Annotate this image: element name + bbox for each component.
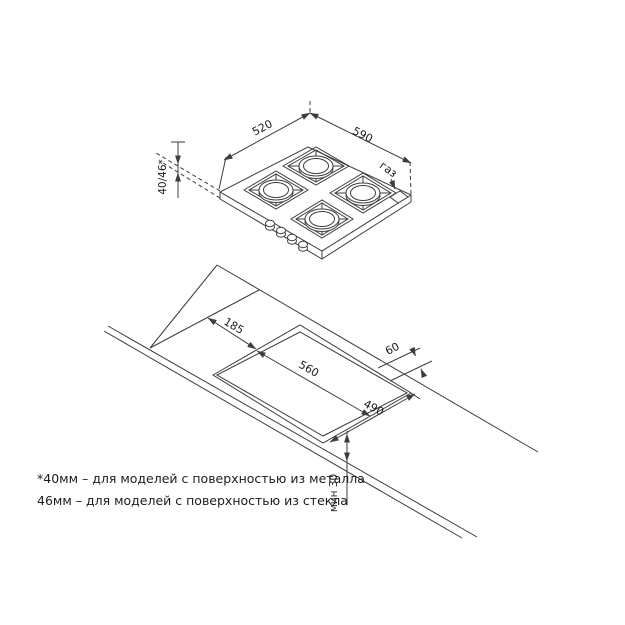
dim-height-label: 40/46* xyxy=(157,159,169,195)
dim-520-label: 520 xyxy=(250,117,275,138)
footnote-line-metal: *40мм – для моделей с поверхностью из ме… xyxy=(37,468,365,490)
dim-590-label: 590 xyxy=(350,124,375,145)
dimension-560: 560 xyxy=(257,351,370,416)
dim-185-label: 185 xyxy=(221,315,246,337)
installation-diagram: газ 520 590 40/46* xyxy=(0,0,625,625)
dim-560-label: 560 xyxy=(296,358,321,380)
gas-label: газ xyxy=(377,159,400,180)
hob-isometric-view: газ 520 590 40/46* xyxy=(156,101,411,259)
dim-490-label: 490 xyxy=(361,397,386,418)
dimension-height: 40/46* xyxy=(156,142,220,198)
dim-60-label: 60 xyxy=(383,340,401,358)
footnote: *40мм – для моделей с поверхностью из ме… xyxy=(37,468,365,512)
technical-drawing: газ 520 590 40/46* xyxy=(0,0,625,625)
cutout-opening xyxy=(213,325,411,443)
footnote-line-glass: 46мм – для моделей с поверхностью из сте… xyxy=(37,490,365,512)
dimension-185: 185 xyxy=(208,315,256,349)
